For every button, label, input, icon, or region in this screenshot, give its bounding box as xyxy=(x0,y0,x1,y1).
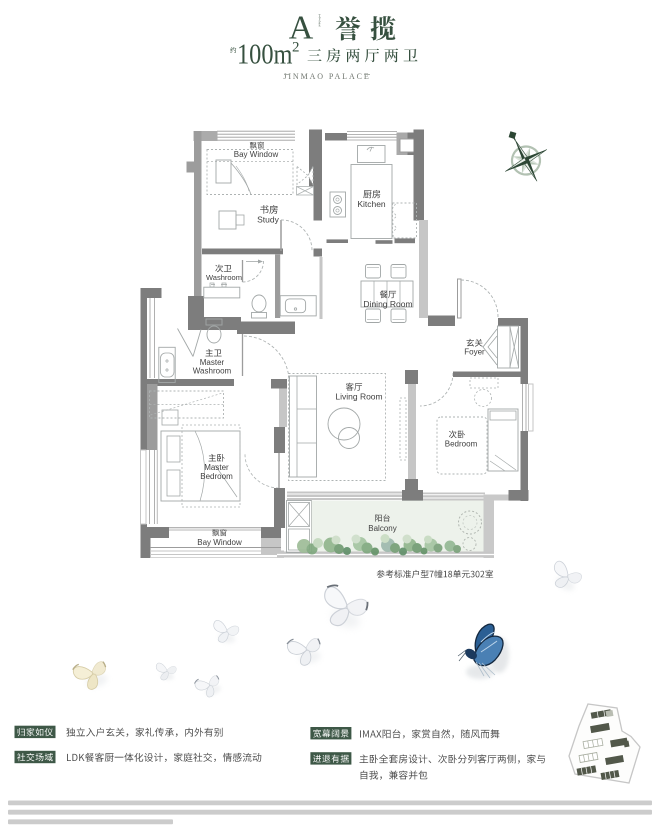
svg-text:Master: Master xyxy=(204,463,229,472)
svg-text:Washroom: Washroom xyxy=(193,367,232,376)
svg-text:Kitchen: Kitchen xyxy=(357,199,386,209)
svg-text:Bay Window: Bay Window xyxy=(197,538,242,547)
svg-text:Bedroom: Bedroom xyxy=(200,472,233,481)
svg-text:Foyer: Foyer xyxy=(464,348,485,357)
svg-text:Study: Study xyxy=(257,215,279,225)
svg-text:Dining Room: Dining Room xyxy=(363,299,412,309)
svg-text:Washroom: Washroom xyxy=(206,273,242,282)
svg-text:Balcony: Balcony xyxy=(368,524,396,533)
svg-text:Living Room: Living Room xyxy=(335,392,382,402)
svg-text:100m: 100m xyxy=(237,38,293,70)
svg-text:Bedroom: Bedroom xyxy=(445,440,478,449)
svg-text:JINMAO PALACE: JINMAO PALACE xyxy=(283,72,370,81)
svg-text:2: 2 xyxy=(292,40,300,56)
svg-text:Bay Window: Bay Window xyxy=(234,150,279,159)
